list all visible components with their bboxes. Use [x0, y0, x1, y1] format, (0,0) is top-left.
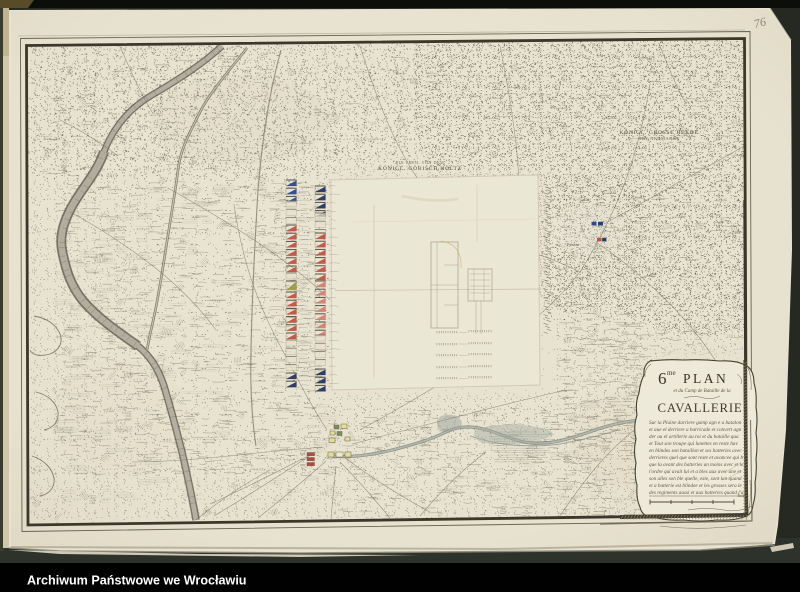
svg-text:der au el artillerie au roi et: der au el artillerie au roi et du batail… — [649, 434, 739, 440]
svg-text:et a batterie est blindee et l: et a batterie est blindee et les grosses… — [649, 483, 742, 489]
svg-text:Archiwum Państwowe we Wrocławi: Archiwum Państwowe we Wrocławiu — [27, 574, 247, 588]
svg-text:des regiments aussi et aux bat: des regiments aussi et aux batteries qua… — [649, 490, 744, 496]
svg-text:en blindes son bataillon et se: en blindes son bataillon et ses batterie… — [649, 448, 742, 454]
svg-text:l'ordre qui avait lui et a ble: l'ordre qui avait lui et a bles aux avec… — [649, 469, 742, 475]
svg-text:KÖNIGL. GÖRISCH HOLTZ: KÖNIGL. GÖRISCH HOLTZ — [378, 165, 462, 172]
svg-text:KÖNIGL. GROSSE HEYDE: KÖNIGL. GROSSE HEYDE — [620, 129, 699, 136]
svg-text:CAVALLERIE: CAVALLERIE — [657, 401, 742, 415]
svg-text:et du Camp de Bataille de la: et du Camp de Bataille de la — [673, 389, 731, 394]
svg-text:que lu avant des batteries un: que lu avant des batteries un moins avec… — [649, 462, 744, 468]
svg-text:BEY NEUMARKT: BEY NEUMARKT — [638, 136, 679, 141]
svg-text:et Tout son troupe qui lunette: et Tout son troupe qui lunettes en reste… — [649, 441, 738, 447]
svg-text:EIN THEIL VON DEM: EIN THEIL VON DEM — [396, 160, 445, 165]
svg-text:6: 6 — [658, 369, 667, 388]
svg-text:et aue el derriere a barricade: et aue el derriere a barricade et conver… — [649, 427, 742, 433]
svg-text:derrieres quel que sont reste: derrieres quel que sont reste et avancee… — [649, 455, 744, 461]
svg-text:Sur la Plaine darriere gamp ag: Sur la Plaine darriere gamp agn e a bata… — [649, 420, 742, 426]
svg-text:son alles son ble quelle, este: son alles son ble quelle, este, sont lan… — [649, 476, 742, 482]
svg-text:Pensin: Pensin — [567, 242, 580, 247]
svg-text:me: me — [667, 369, 676, 377]
svg-text:PLAN: PLAN — [683, 371, 728, 386]
